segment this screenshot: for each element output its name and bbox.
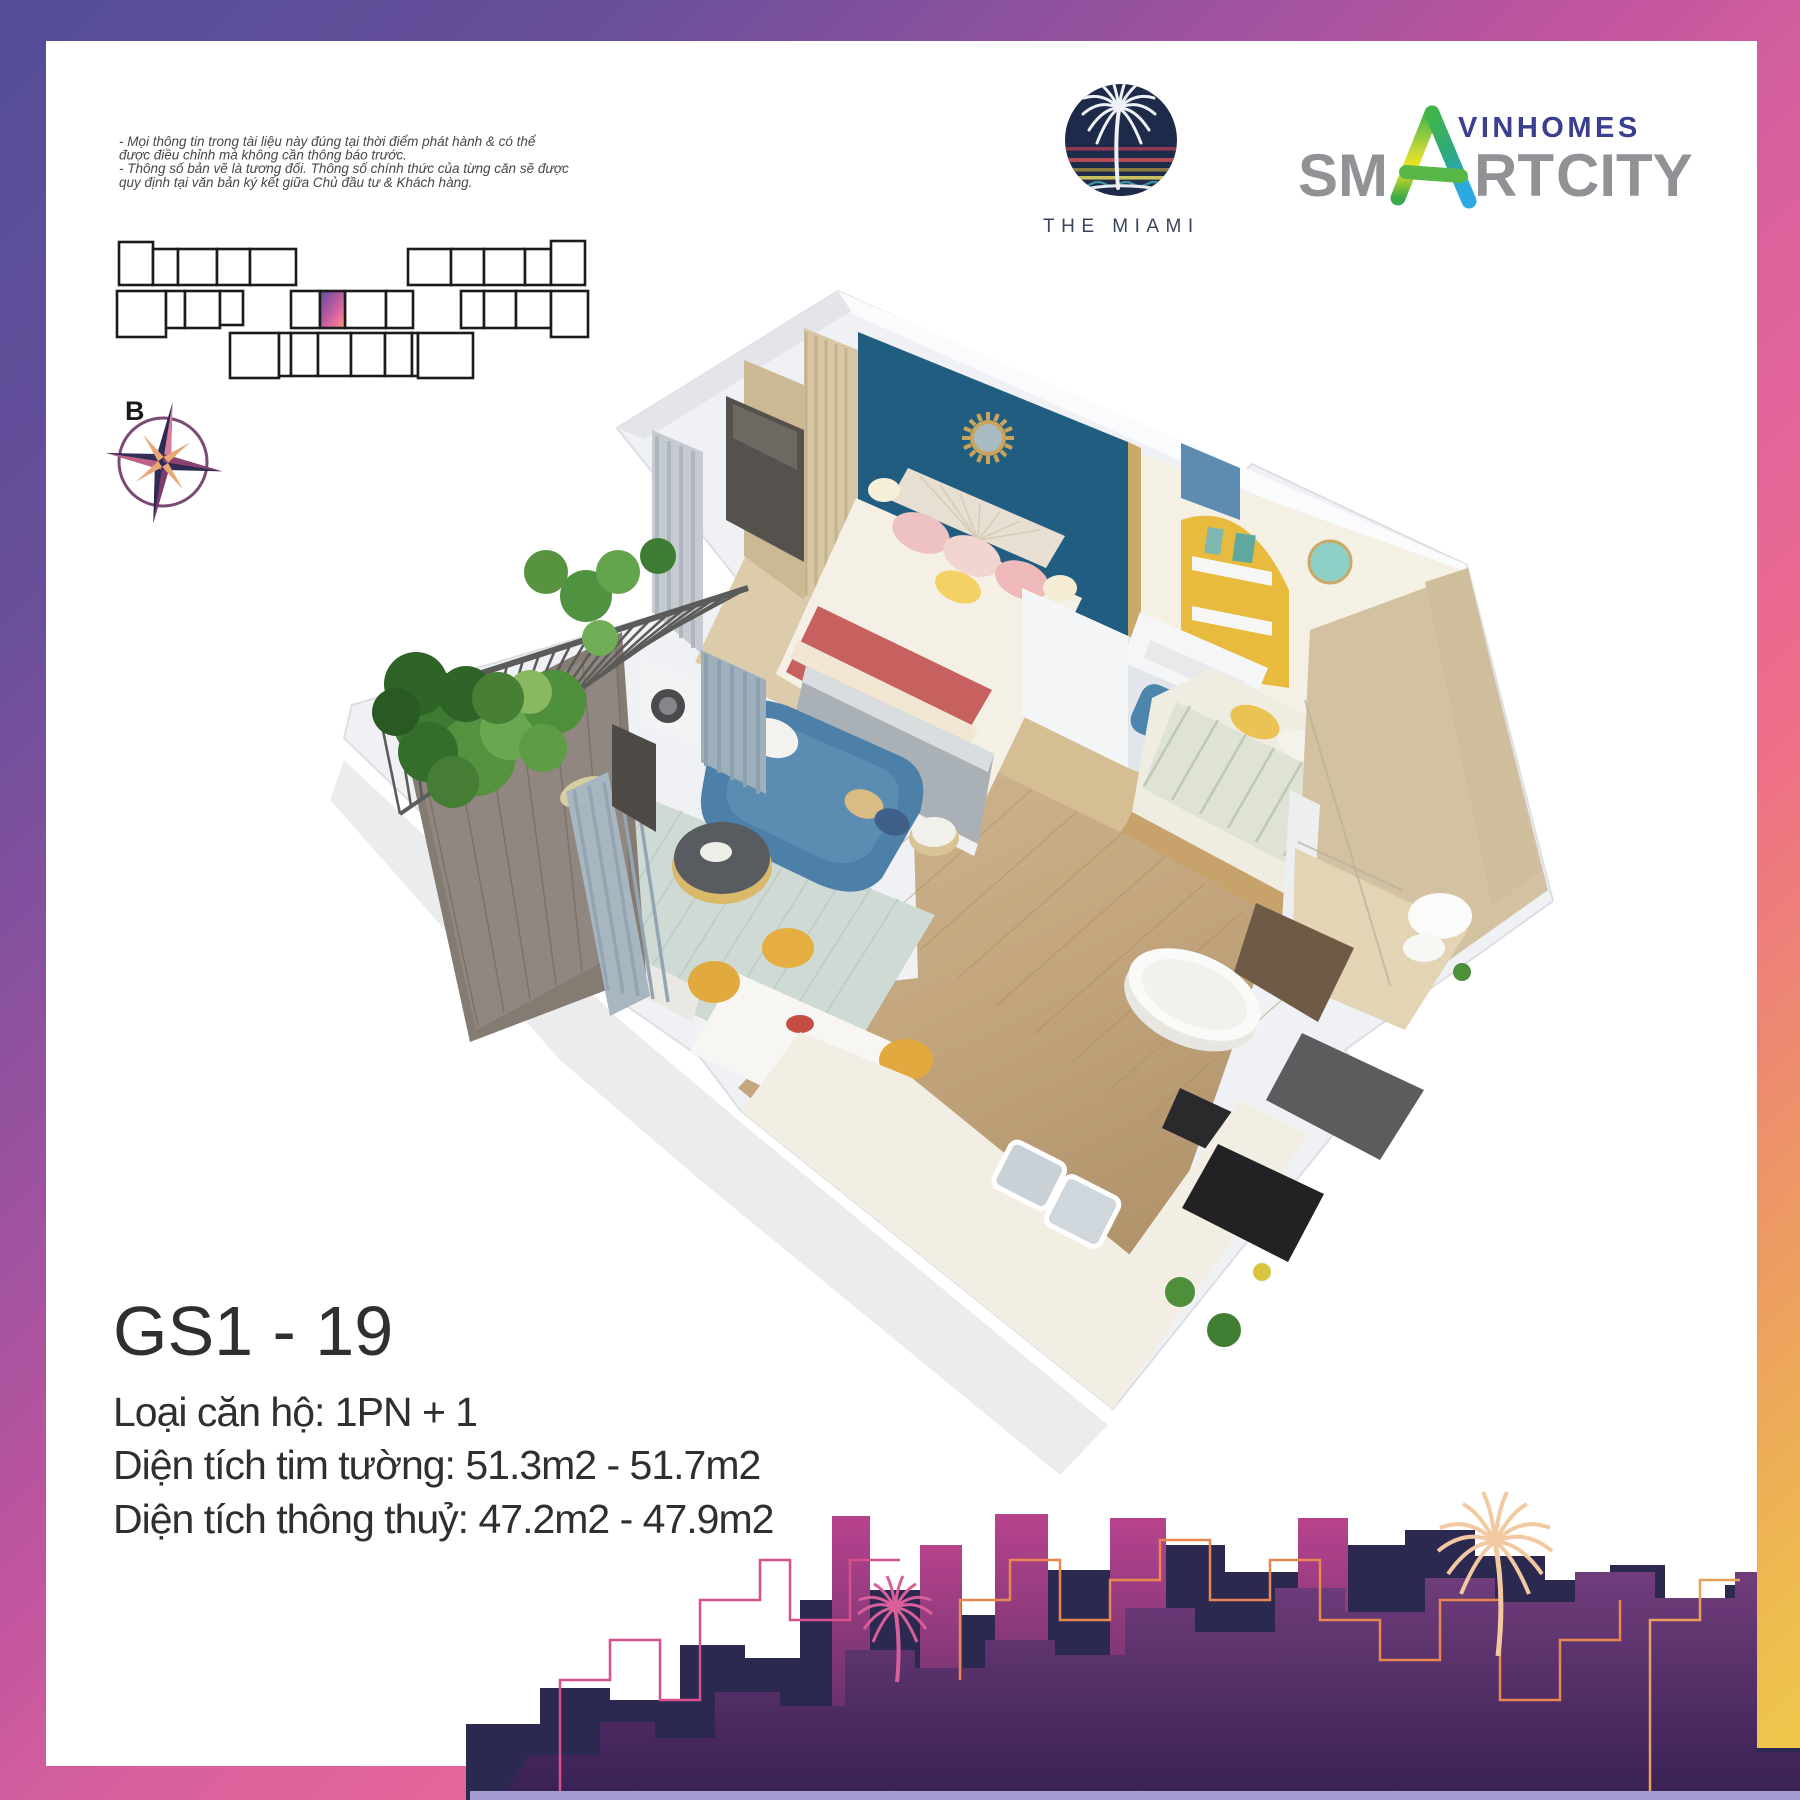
svg-text:B: B [125,396,145,426]
svg-text:RT: RT [1474,142,1554,209]
svg-text:THE MIAMI: THE MIAMI [1043,216,1200,237]
svg-text:VINHOMES: VINHOMES [1458,112,1641,144]
svg-text:Diện tích thông thuỷ: 47.2m2 -: Diện tích thông thuỷ: 47.2m2 - 47.9m2 [113,1496,773,1542]
svg-text:quy định tại văn bản ký kết gi: quy định tại văn bản ký kết giữa Chủ đầu… [119,175,472,190]
svg-text:GS1 - 19: GS1 - 19 [113,1292,393,1370]
svg-text:CITY: CITY [1556,142,1693,209]
svg-text:SM: SM [1298,142,1388,209]
svg-text:Loại căn hộ: 1PN + 1: Loại căn hộ: 1PN + 1 [113,1389,477,1435]
svg-text:Diện tích tim tường: 51.3m2 -: Diện tích tim tường: 51.3m2 - 51.7m2 [113,1442,760,1488]
